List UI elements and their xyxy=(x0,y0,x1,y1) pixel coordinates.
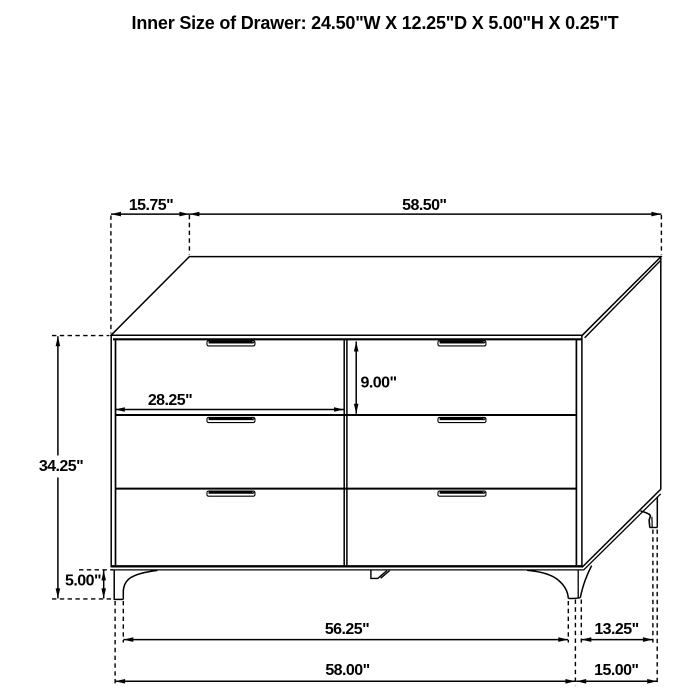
svg-text:15.75": 15.75" xyxy=(129,197,173,214)
svg-text:Inner Size of Drawer: 24.50"W: Inner Size of Drawer: 24.50"W X 12.25"D … xyxy=(132,13,619,33)
svg-text:5.00": 5.00" xyxy=(65,573,101,590)
svg-text:58.00": 58.00" xyxy=(325,662,369,679)
svg-text:9.00": 9.00" xyxy=(361,375,397,392)
svg-text:34.25": 34.25" xyxy=(39,458,83,475)
svg-text:58.50": 58.50" xyxy=(402,197,446,214)
svg-text:13.25": 13.25" xyxy=(594,621,638,638)
svg-text:15.00": 15.00" xyxy=(594,662,638,679)
svg-text:56.25": 56.25" xyxy=(325,621,369,638)
svg-text:28.25": 28.25" xyxy=(148,392,192,409)
